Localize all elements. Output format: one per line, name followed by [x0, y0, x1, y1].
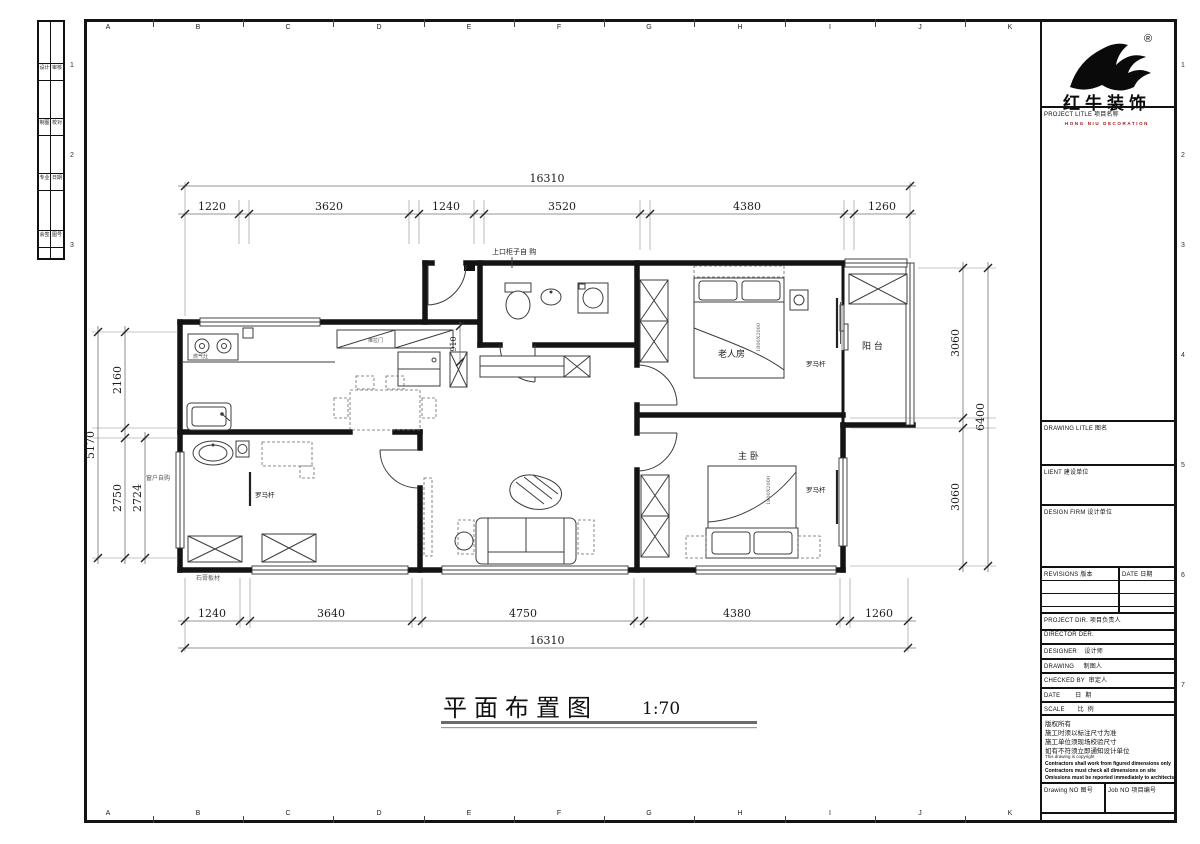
registered-mark: ®: [1144, 33, 1152, 45]
master-room: 主 卧 1800X2000 罗马杆: [641, 450, 837, 558]
drain-box: [236, 441, 249, 457]
svg-text:1240: 1240: [432, 200, 460, 213]
entry-door: [428, 265, 466, 305]
field-project-dir: PROJECT DIR. 项目负责人: [1044, 615, 1121, 624]
grid-number: 1: [1181, 62, 1185, 69]
field-design-firm: DESIGN FIRM 设计单位: [1044, 507, 1112, 516]
sliding-cabinet: [337, 330, 453, 348]
stove-label: 燃气灶: [193, 353, 208, 360]
study-hatch-box-1: [188, 536, 242, 562]
elder-room-label: 老人房: [718, 348, 745, 360]
grid-number: 3: [1181, 242, 1185, 249]
bird-glyph: [1070, 44, 1151, 91]
svg-text:4380: 4380: [723, 607, 751, 620]
border-right: [1174, 19, 1177, 823]
stool: [300, 466, 314, 478]
dims-left: 5170 2160 2750 2724: [87, 326, 178, 564]
coffee-table: [510, 475, 562, 509]
grid-number: 5: [1181, 462, 1185, 469]
bathroom: [450, 283, 608, 387]
balcony-top-window: [845, 259, 907, 267]
title-block: ® 红牛装饰 HONG NIU DECORATION PROJECT LITLE…: [1040, 19, 1174, 820]
svg-text:2750: 2750: [111, 484, 124, 512]
svg-text:3060: 3060: [949, 329, 962, 357]
study-door: [380, 450, 418, 488]
svg-text:1260: 1260: [868, 200, 896, 213]
plan-title: 平面布置图 1:70: [441, 694, 757, 728]
elder-room: 老人房 1800X2000 罗马杆: [640, 266, 841, 378]
bottom-window-3: [696, 566, 836, 574]
balcony-slider: [840, 300, 848, 352]
hall-hatch-box: [564, 356, 590, 377]
side-table-right: [578, 520, 594, 554]
dims-right: 3060 3060 6400: [850, 262, 996, 572]
plan-title-text: 平面布置图: [443, 694, 598, 722]
sign-strip: 设计 审核 制图 校对 专业 日期 会签 图号: [37, 20, 65, 260]
sliding-door-label: 推拉门: [368, 337, 383, 344]
master-nightstand-left: [686, 536, 706, 558]
master-right-window: [839, 458, 847, 546]
curtain-rod-label: 罗马杆: [806, 359, 826, 368]
floor-plan: 燃气灶 推拉门: [87, 22, 1040, 820]
border-bottom: [84, 820, 1177, 823]
dresser: [262, 442, 312, 466]
elder-nightstand: [790, 290, 808, 310]
bottom-window-2: [442, 566, 628, 574]
window-note: 窗户自购: [146, 474, 170, 482]
study-room: 罗马杆 窗户自购 石膏板材: [146, 441, 316, 582]
grid-number: 6: [1181, 572, 1185, 579]
svg-text:3640: 3640: [317, 607, 345, 620]
note-en-bold: Contractors must check all dimensions on…: [1045, 768, 1156, 775]
svg-text:1220: 1220: [198, 200, 226, 213]
balcony-hatch-box: [849, 274, 907, 304]
svg-text:16310: 16310: [530, 634, 565, 647]
switch-box: [243, 328, 253, 338]
field-revisions: REVISIONS 版本: [1044, 569, 1093, 578]
svg-text:1260: 1260: [865, 607, 893, 620]
master-door: [639, 433, 677, 471]
field-checked-by: CHECKED BY 审定人: [1044, 675, 1107, 684]
grid-number: 2: [1181, 152, 1185, 159]
field-client: LIENT 建设单位: [1044, 467, 1089, 476]
study-hatch-box-2: [262, 534, 316, 562]
svg-text:910: 910: [449, 336, 458, 351]
svg-text:2160: 2160: [111, 366, 124, 394]
master-nightstand-right: [798, 536, 820, 558]
field-designer: DESIGNER 设计师: [1044, 646, 1103, 655]
grid-number: 1: [70, 62, 74, 69]
kitchen: 燃气灶 推拉门: [183, 328, 453, 430]
field-drawing-no: Drawing NO 图号: [1044, 785, 1093, 794]
field-job-no: Job NO 项目编号: [1108, 785, 1156, 794]
note-en-bold: Contractors shall work from figured dime…: [1045, 761, 1171, 768]
grid-number: 7: [1181, 682, 1185, 689]
elder-bed: [694, 278, 784, 378]
field-scale: SCALE 比 例: [1044, 704, 1094, 713]
field-project-title: PROJECT LITLE 项目名称: [1044, 109, 1119, 118]
field-drawing-by: DRAWING 制图人: [1044, 661, 1102, 670]
gypsum-note: 石膏板材: [196, 574, 220, 582]
plan-scale-text: 1:70: [642, 699, 680, 719]
sign-cell: 校对: [50, 118, 64, 136]
svg-text:4380: 4380: [733, 200, 761, 213]
note-en-bold: Omissions must be reported immediately t…: [1045, 775, 1174, 782]
svg-text:3060: 3060: [949, 483, 962, 511]
field-drawing-title: DRAWING LITLE 图名: [1044, 423, 1107, 432]
master-bed: [706, 466, 798, 558]
kitchen-window: [200, 318, 320, 326]
svg-text:上口柜子自 购: 上口柜子自 购: [492, 247, 536, 256]
grid-number: 3: [70, 242, 74, 249]
bottom-window-1: [252, 566, 408, 574]
tv-cabinet: [424, 478, 432, 556]
round-stool: [455, 532, 473, 550]
elder-top-cabinet: [694, 266, 784, 277]
kitchen-sink: [187, 403, 231, 430]
svg-text:4750: 4750: [509, 607, 537, 620]
washer: [578, 283, 608, 313]
svg-text:3620: 3620: [315, 200, 343, 213]
dims-bottom: 1240 3640 4750 4380 1260 16310: [178, 578, 916, 652]
master-wardrobe: [641, 475, 669, 557]
elder-bed-size: 1800X2000: [756, 323, 762, 352]
sofa: [476, 518, 576, 564]
column-box: [450, 352, 467, 387]
left-window: [176, 452, 184, 548]
field-date-head: DATE 日期: [1122, 569, 1153, 578]
balcony: 阳 台: [849, 274, 907, 352]
field-director: DIRECTOR DER.: [1044, 632, 1094, 638]
grid-number: 2: [70, 152, 74, 159]
sign-cell: 日期: [50, 173, 64, 191]
svg-text:5170: 5170: [87, 431, 97, 459]
brand-subtitle: HONG NIU DECORATION: [1065, 121, 1149, 126]
balcony-label: 阳 台: [862, 340, 883, 352]
master-room-label: 主 卧: [738, 450, 759, 462]
grid-number: 4: [1181, 352, 1185, 359]
curtain-rod-label: 罗马杆: [806, 485, 826, 494]
master-bed-size: 1800X2000: [766, 476, 772, 505]
note-en: This drawing is copyright: [1045, 754, 1095, 759]
elder-wardrobe: [640, 280, 668, 362]
living-room: [424, 475, 594, 564]
svg-text:1240: 1240: [198, 607, 226, 620]
svg-text:16310: 16310: [530, 172, 565, 185]
field-date: DATE 日 期: [1044, 690, 1091, 699]
elder-door: [639, 365, 677, 405]
curtain-rod-label: 罗马杆: [255, 490, 275, 499]
svg-text:6400: 6400: [974, 403, 987, 431]
wash-basin: [193, 441, 233, 465]
logo-mark: [1058, 31, 1158, 93]
svg-text:3520: 3520: [548, 200, 576, 213]
basin-small: [541, 289, 561, 305]
svg-text:2724: 2724: [131, 484, 144, 512]
hall-cabinet: [480, 356, 564, 377]
toilet: [505, 283, 531, 319]
drawing-sheet: 设计 审核 制图 校对 专业 日期 会签 图号 A B C D E F G H …: [0, 0, 1200, 844]
sign-cell: 审核: [50, 63, 64, 81]
sign-cell: 图号: [50, 230, 64, 248]
